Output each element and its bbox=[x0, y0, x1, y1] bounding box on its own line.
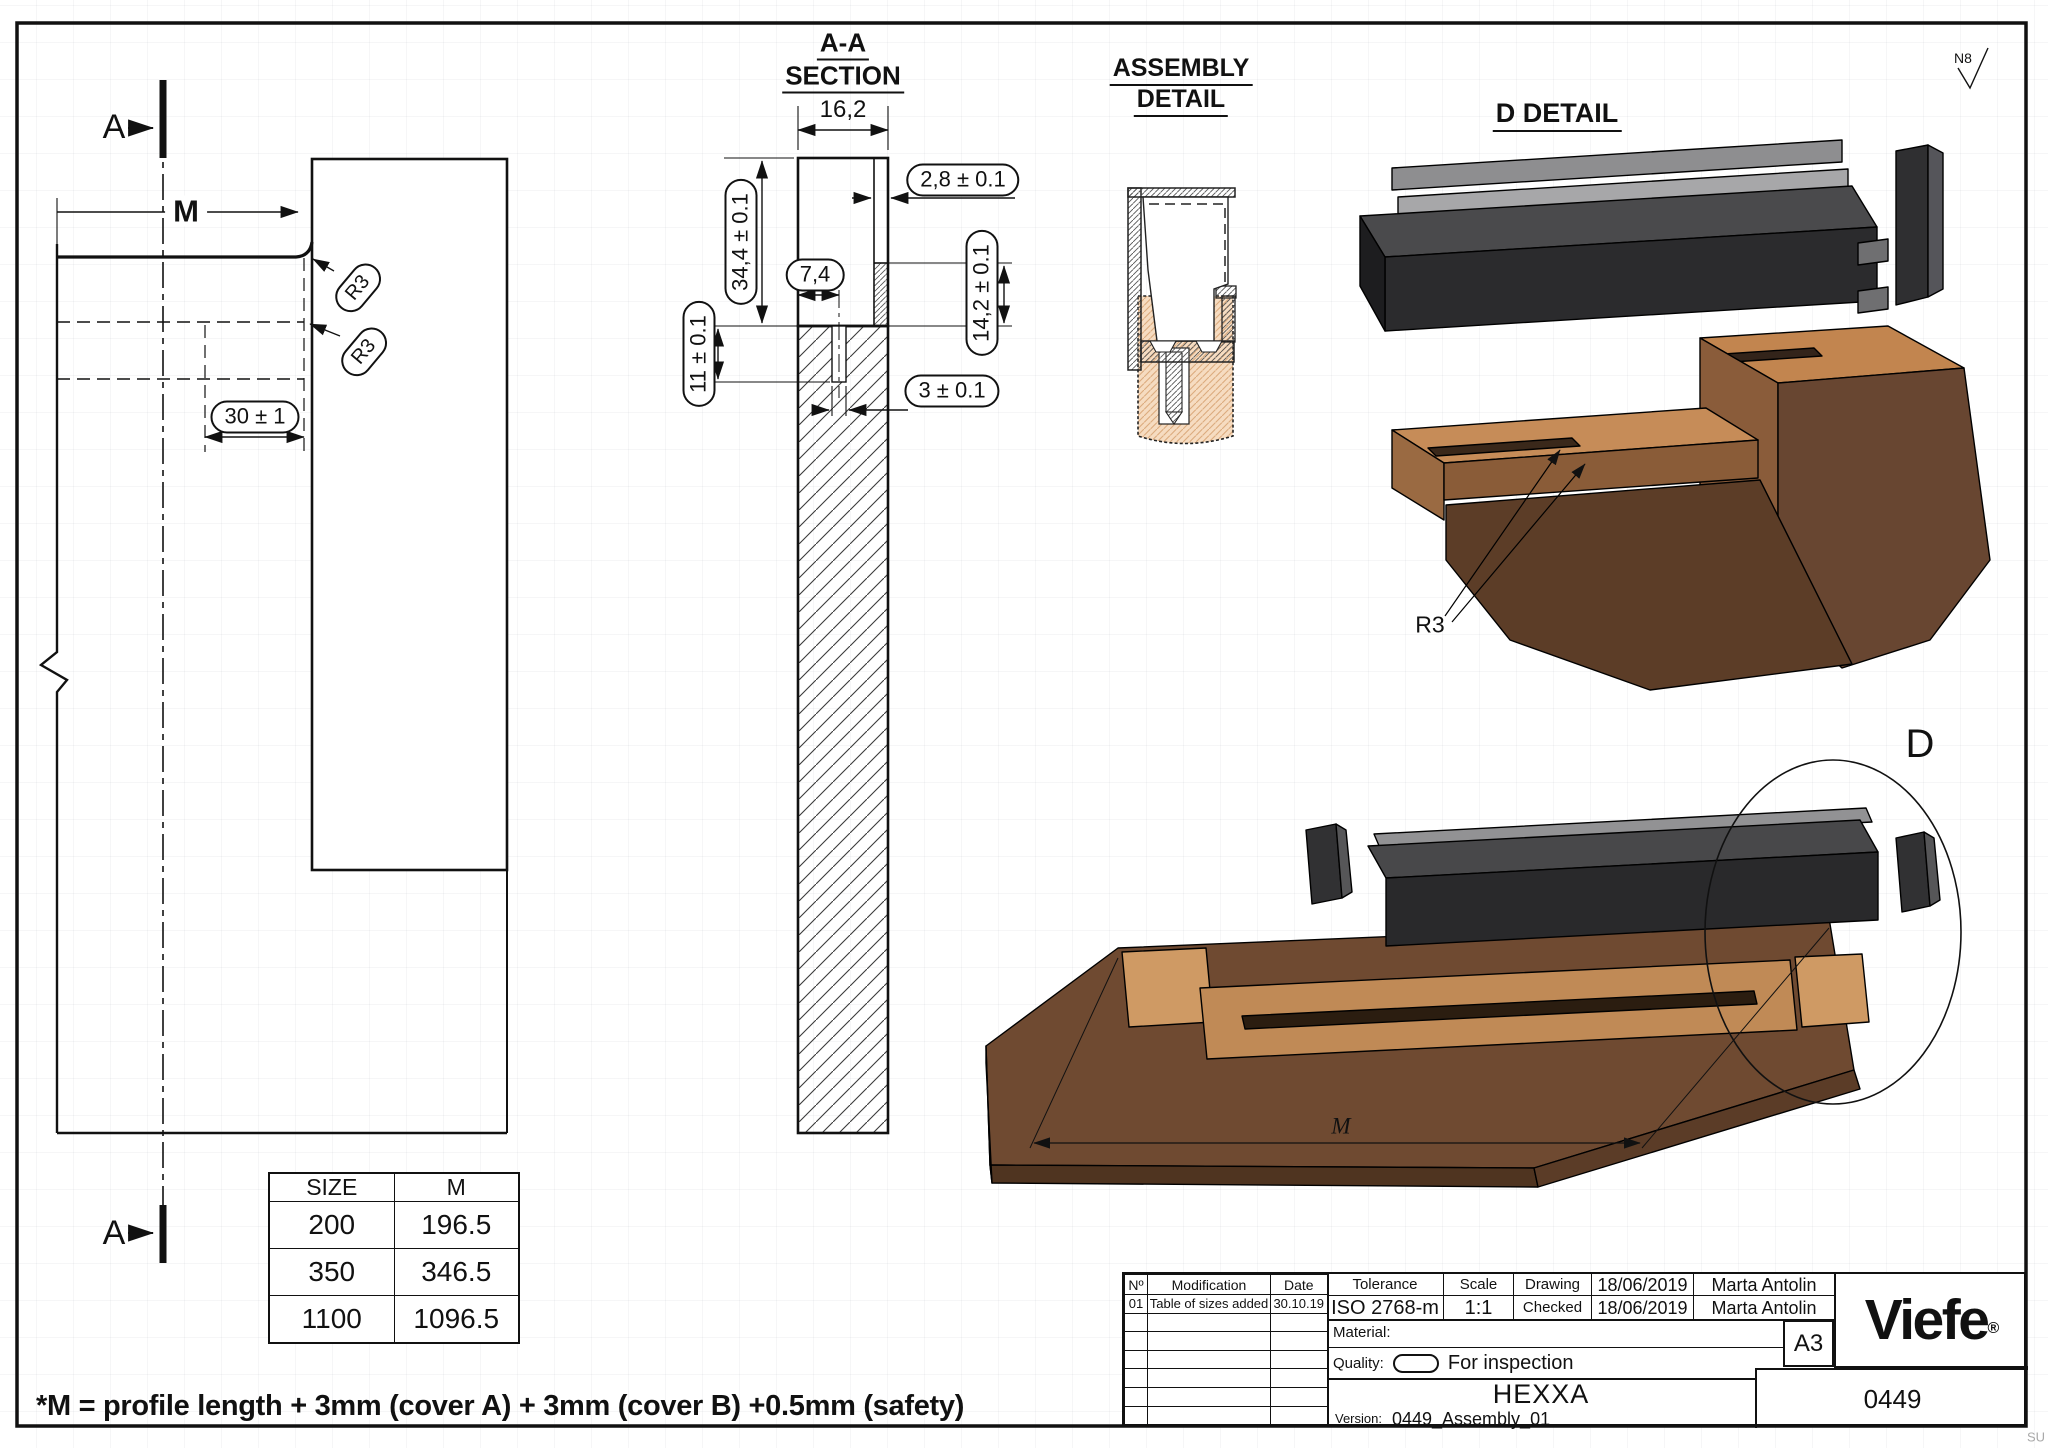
dim-m-label: M bbox=[165, 196, 207, 227]
quality-label: Quality: bbox=[1333, 1356, 1384, 1371]
rev-col-no: Nº bbox=[1125, 1275, 1148, 1295]
version-label: Version: bbox=[1335, 1412, 1382, 1425]
dim-3: 3 ± 0.1 bbox=[904, 375, 999, 408]
quality-value: For inspection bbox=[1448, 1353, 1574, 1373]
d-detail-view bbox=[1360, 140, 1990, 690]
section-title-2: SECTION bbox=[782, 63, 904, 94]
section-label-a-top: A bbox=[103, 110, 126, 144]
paper-size: A3 bbox=[1783, 1320, 1834, 1367]
checked-date: 18/06/2019 bbox=[1592, 1296, 1694, 1319]
assembly-detail-view bbox=[1128, 188, 1236, 444]
assembly-3d-view bbox=[986, 760, 1961, 1187]
product-name: HEXXA bbox=[1327, 1380, 1755, 1409]
logo-box: Viefe® bbox=[1834, 1274, 2028, 1368]
table-row: 350 346.5 bbox=[269, 1249, 519, 1296]
drawing-sheet: A A M R3 R3 30 ± 1 A-A SECTION 16,2 2,8 … bbox=[0, 0, 2048, 1448]
drawing-date: 18/06/2019 bbox=[1592, 1274, 1694, 1296]
board-section bbox=[798, 326, 888, 1133]
d-detail-title: D DETAIL bbox=[1493, 100, 1622, 132]
surface-finish-label: N8 bbox=[1954, 51, 1972, 65]
quality-row: Quality: For inspection bbox=[1327, 1348, 1755, 1380]
recess-right bbox=[1795, 954, 1869, 1027]
viefe-logo: Viefe® bbox=[1865, 1292, 2000, 1349]
clip-upper bbox=[1858, 239, 1888, 265]
dim-34-4: 34,4 ± 0.1 bbox=[725, 179, 758, 305]
drawing-number: 0449 bbox=[1755, 1368, 2028, 1428]
checked-label: Checked bbox=[1514, 1296, 1592, 1319]
material-label: Material: bbox=[1327, 1321, 1783, 1348]
m-formula-note: *M = profile length + 3mm (cover A) + 3m… bbox=[36, 1390, 964, 1423]
m-header: M bbox=[394, 1173, 519, 1202]
scale-label: Scale bbox=[1444, 1274, 1514, 1296]
left-profile-view bbox=[41, 80, 507, 1263]
assembly-detail-title-1: ASSEMBLY bbox=[1110, 56, 1253, 86]
size-table: SIZE M 200 196.5 350 346.5 1100 1096.5 bbox=[268, 1172, 520, 1344]
dim-11: 11 ± 0.1 bbox=[683, 301, 716, 407]
dim-30: 30 ± 1 bbox=[210, 401, 299, 434]
version-value: 0449_Assembly_01 bbox=[1392, 1410, 1550, 1428]
assembly-detail-title-2: DETAIL bbox=[1134, 87, 1228, 117]
dim-14-2: 14,2 ± 0.1 bbox=[966, 230, 999, 356]
revision-table: Nº Modification Date 01 Table of sizes a… bbox=[1124, 1274, 1329, 1425]
title-block: Nº Modification Date 01 Table of sizes a… bbox=[1122, 1272, 2026, 1426]
dim-7-4: 7,4 bbox=[786, 259, 845, 292]
table-row: 1100 1096.5 bbox=[269, 1296, 519, 1343]
rev-col-modification: Modification bbox=[1148, 1275, 1271, 1295]
size-header: SIZE bbox=[269, 1173, 394, 1202]
section-title-1: A-A bbox=[817, 30, 869, 61]
section-label-a-bottom: A bbox=[103, 1216, 126, 1250]
watermark: SU bbox=[2027, 1431, 2045, 1444]
assembly-m-label: M bbox=[1331, 1115, 1350, 1138]
table-row: 200 196.5 bbox=[269, 1202, 519, 1249]
d-detail-r3-label: R3 bbox=[1415, 614, 1444, 637]
size-table-header: SIZE M bbox=[269, 1173, 519, 1202]
cover-outline bbox=[312, 159, 507, 870]
tolerance-label: Tolerance bbox=[1327, 1274, 1444, 1296]
dim-2-8: 2,8 ± 0.1 bbox=[906, 164, 1019, 197]
drawing-label: Drawing bbox=[1514, 1274, 1592, 1296]
break-line bbox=[41, 244, 67, 1133]
drawing-author: Marta Antolin bbox=[1694, 1274, 1834, 1296]
version-row: Version: 0449_Assembly_01 bbox=[1327, 1409, 1755, 1428]
rev-col-date: Date bbox=[1271, 1275, 1328, 1295]
end-cap bbox=[1896, 145, 1928, 305]
dim-16-2: 16,2 bbox=[820, 98, 867, 122]
profile-wall bbox=[1128, 188, 1141, 370]
checked-author: Marta Antolin bbox=[1694, 1296, 1834, 1319]
scale-value: 1:1 bbox=[1444, 1296, 1514, 1319]
tolerance-value: ISO 2768-m bbox=[1327, 1296, 1444, 1319]
revision-row: 01 Table of sizes added 30.10.19 bbox=[1125, 1295, 1328, 1314]
detail-circle-label: D bbox=[1906, 724, 1935, 764]
recess-left bbox=[1122, 948, 1213, 1027]
quality-check-oval bbox=[1393, 1354, 1439, 1373]
clip-lower bbox=[1858, 287, 1888, 313]
